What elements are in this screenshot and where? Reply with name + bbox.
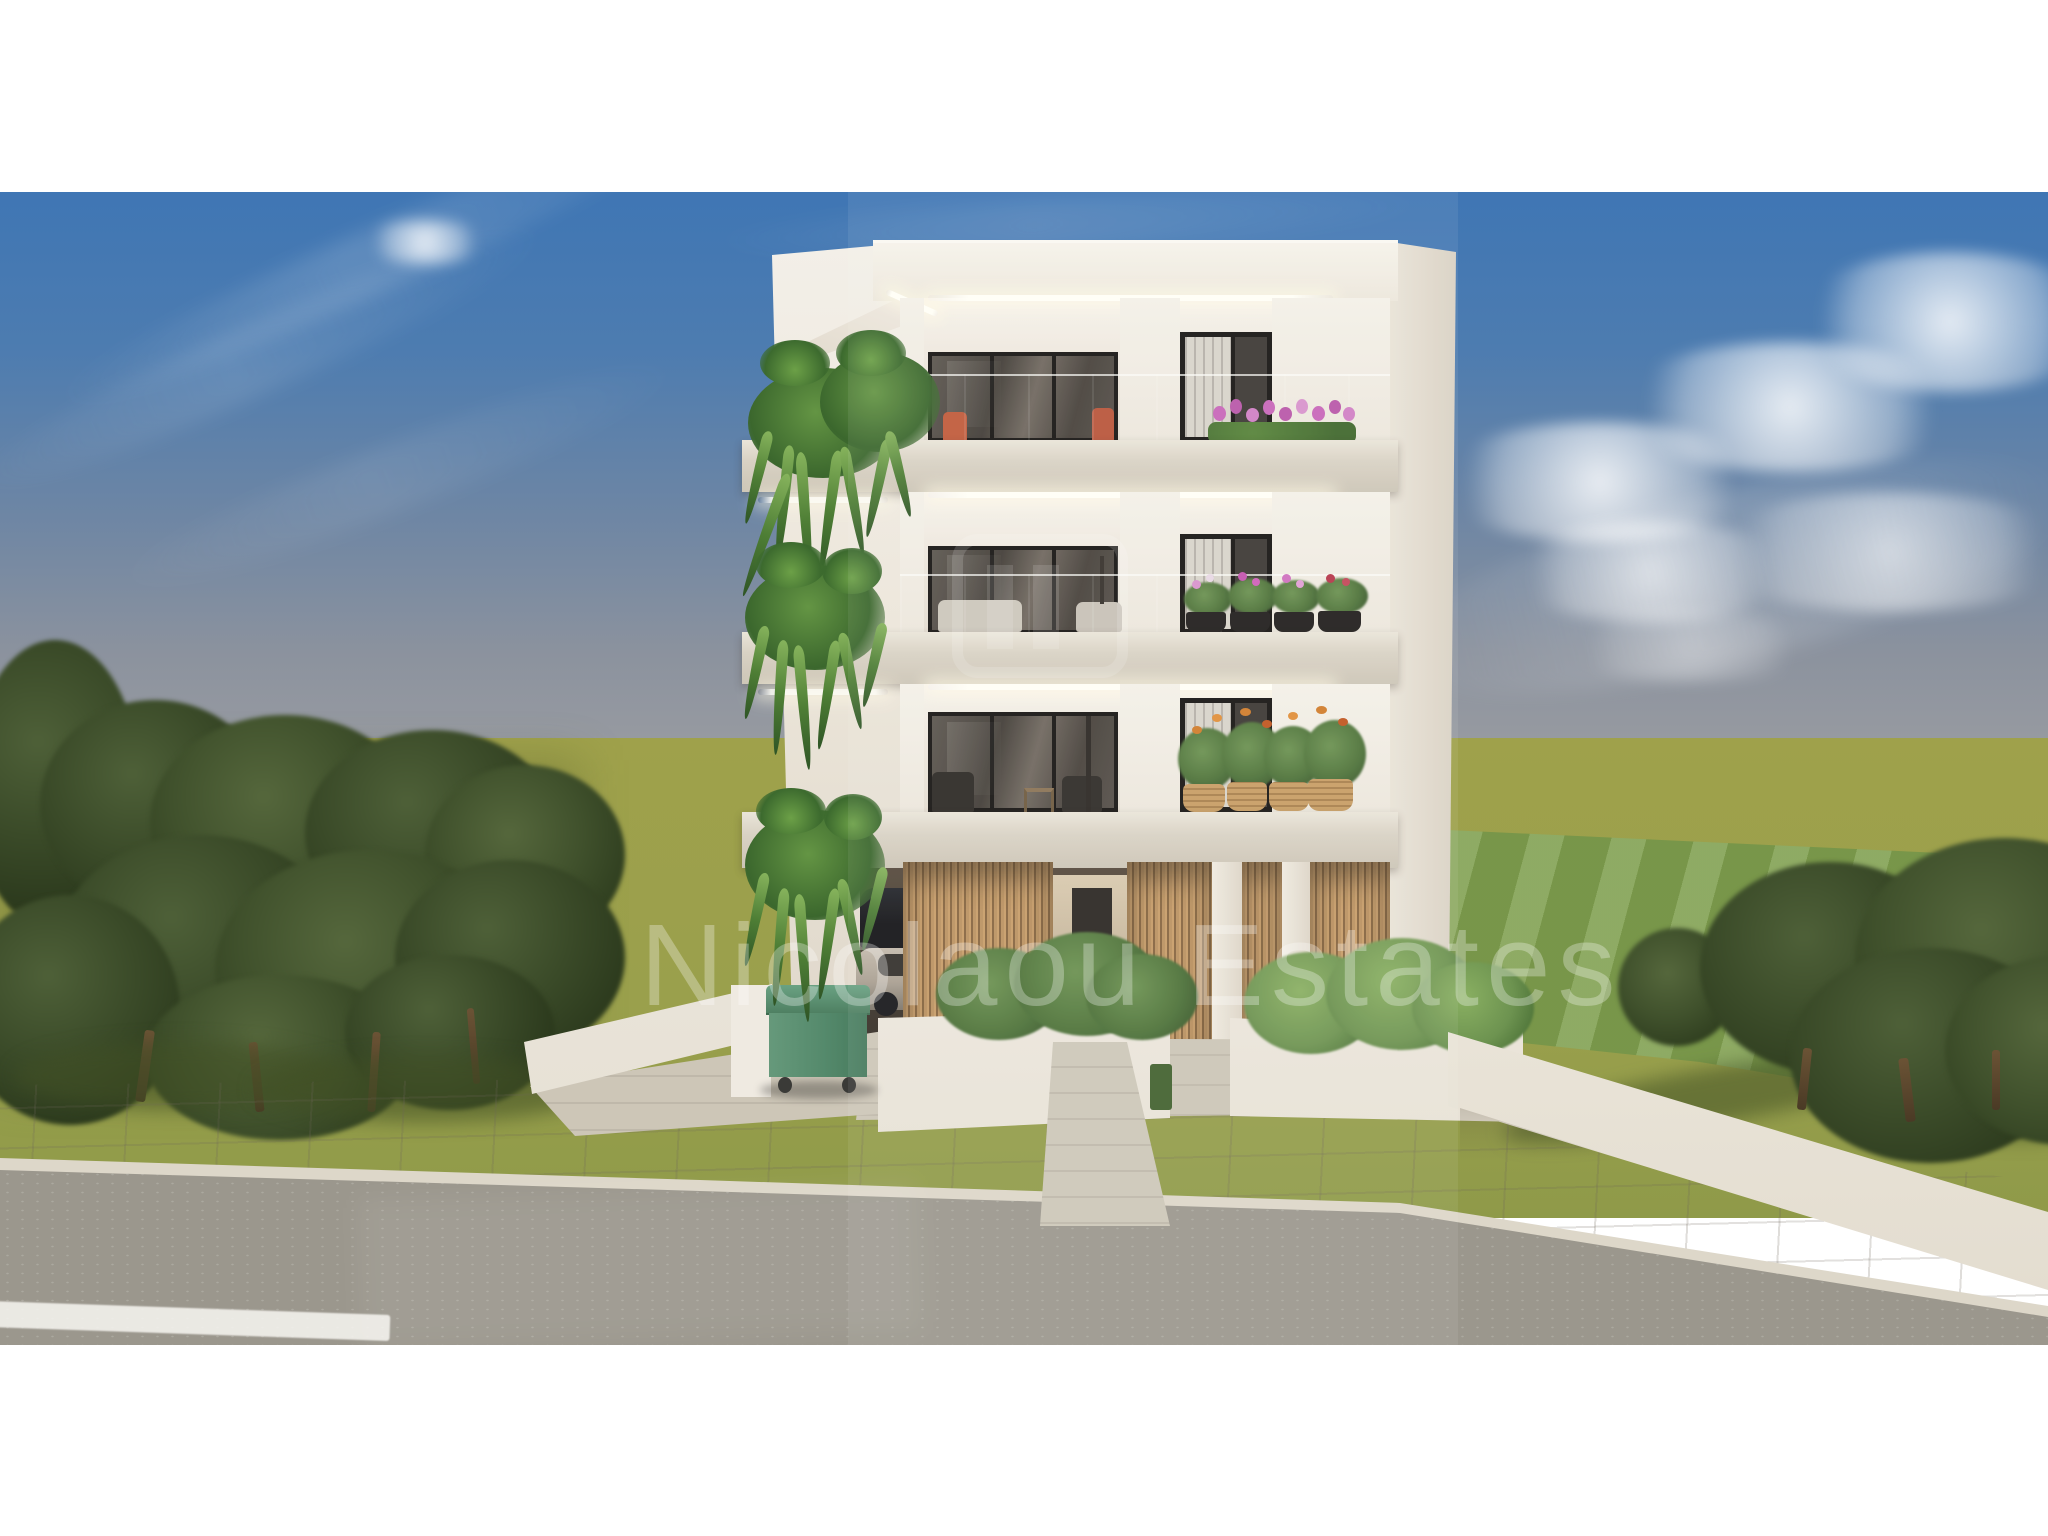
tree-trunk (1992, 1050, 2000, 1110)
road-light-patch (358, 1180, 923, 1349)
bin-wheel (778, 1077, 792, 1093)
watermark-logo-bar (1033, 565, 1059, 649)
fern-tuft (756, 788, 826, 834)
cloud-puff (360, 220, 490, 264)
watermark-text: Nicolaou Estates (640, 898, 1420, 1032)
fern-tuft (756, 542, 826, 588)
watermark-overlay-box (848, 192, 1458, 1345)
watermark-logo-bar (987, 565, 1013, 649)
rendering-canvas: Nicolaou Estates (0, 0, 2048, 1536)
letterbox-top (0, 0, 2048, 192)
fern-tuft (760, 340, 830, 386)
letterbox-bottom (0, 1345, 2048, 1536)
watermark-logo (952, 534, 1128, 678)
